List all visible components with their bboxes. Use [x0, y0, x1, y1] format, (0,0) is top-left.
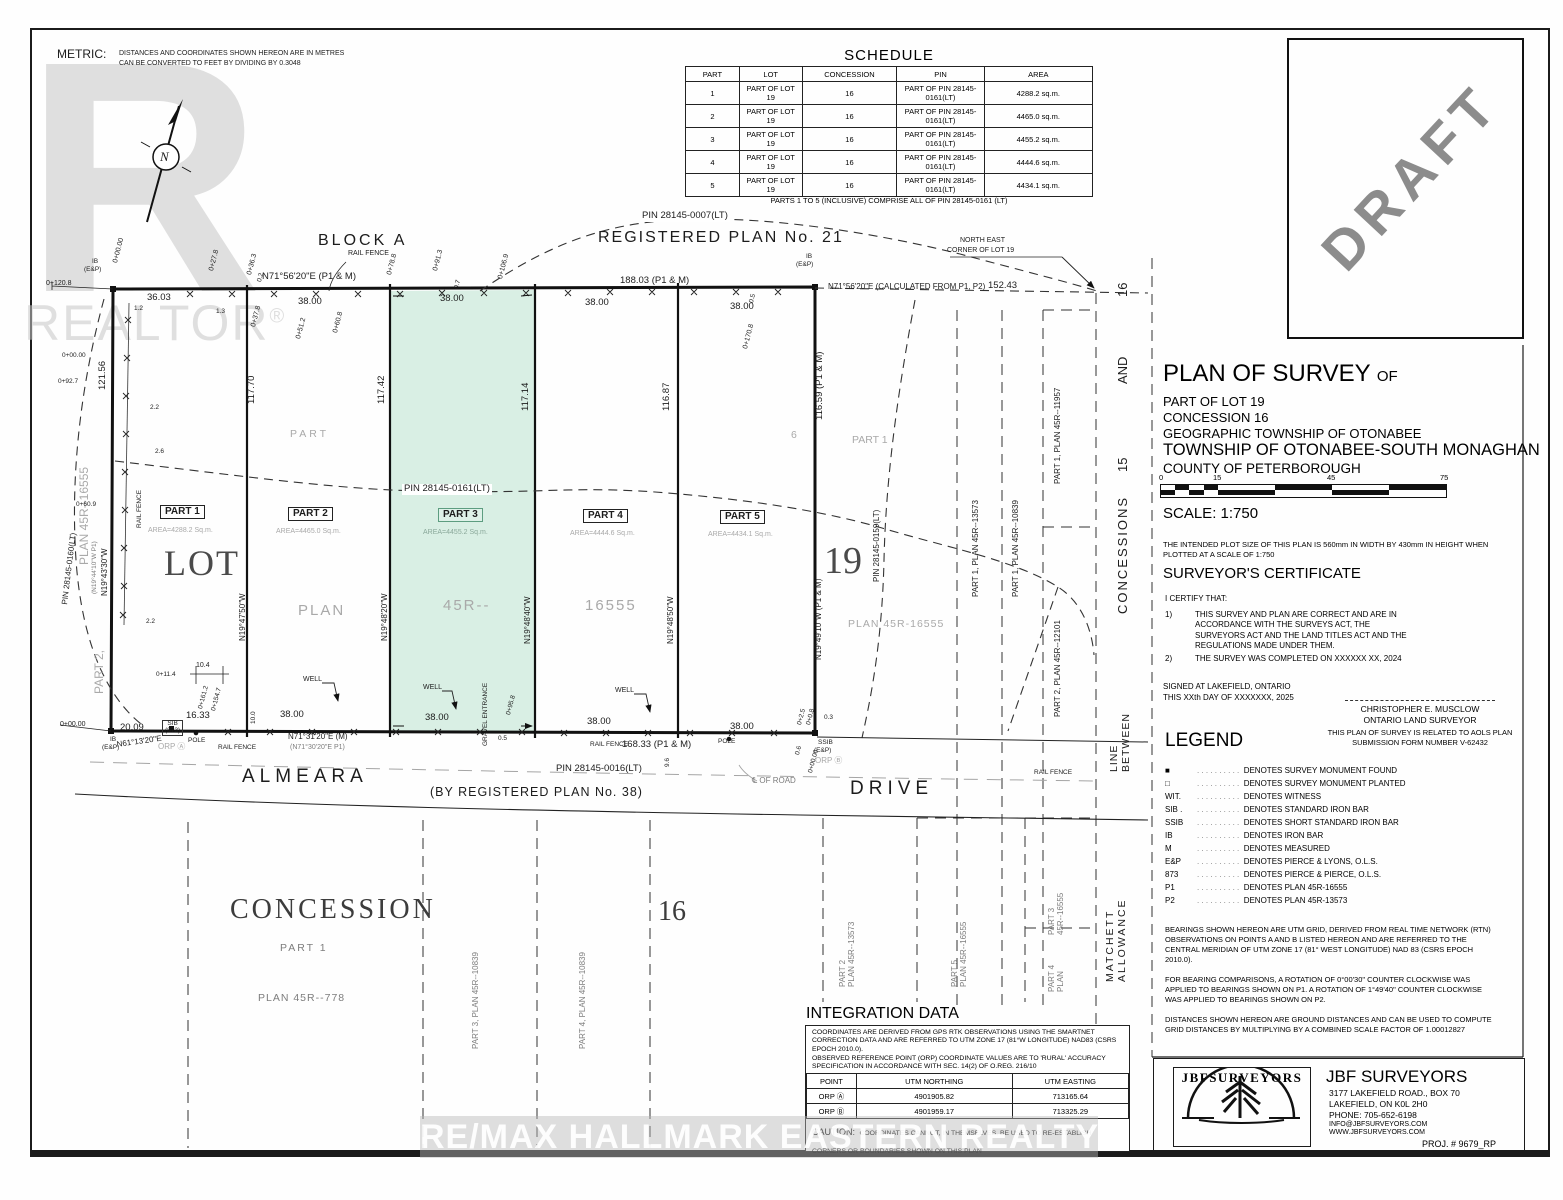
dim-117-70: 117.70	[247, 376, 258, 404]
chainage-0-00-left: 0+00.00	[62, 352, 86, 359]
part3-box: PART 3	[438, 508, 483, 522]
well3-leader	[634, 694, 650, 712]
well1-label: WELL	[303, 676, 322, 684]
dim-10-4: 10.4	[196, 662, 210, 670]
cert1-num: 1)	[1165, 610, 1172, 619]
schedule-title: SCHEDULE	[685, 47, 1093, 64]
ref-45r10839-p4: PART 4, PLAN 45R--10839	[578, 952, 587, 1049]
almeara-street-label: ALMEARA	[242, 766, 368, 788]
offset-1-3: 1.3	[216, 308, 225, 315]
dim-10-0: 10.0	[250, 711, 257, 724]
schedule-row: 1PART OF LOT 1916PART OF PIN 28145-0161(…	[686, 82, 1093, 105]
part4-box: PART 4	[583, 509, 628, 523]
cert2-num: 2)	[1165, 654, 1172, 663]
ghost-part1-right: PART 1	[852, 434, 888, 446]
dim-117-42: 117.42	[377, 376, 388, 404]
legend-row: M. . . . . . . . . . DENOTES MEASURED	[1165, 842, 1406, 855]
ref-line2: 45R--16555	[1056, 893, 1065, 935]
matchett-allowance-label: MATCHETT ALLOWANCE	[1104, 898, 1128, 982]
integration-header-row: POINT UTM NORTHING UTM EASTING	[807, 1074, 1129, 1089]
surveyors-certificate-title: SURVEYOR'S CERTIFICATE	[1163, 565, 1361, 582]
survey-plan-sheet: R REALTOR®	[0, 0, 1563, 1200]
scale-bar	[1160, 484, 1447, 498]
ref-45r10839: PART 1, PLAN 45R--10839	[1011, 500, 1020, 597]
aols-note: THIS PLAN OF SURVEY IS RELATED TO AOLS P…	[1305, 728, 1535, 748]
bearing-v1: N19°47'50"W	[238, 593, 247, 641]
sib-873-box: SIB (873)	[162, 720, 183, 736]
scale-tick-0: 0	[1159, 473, 1163, 482]
concessions-vertical-label: CONCESSIONS	[1116, 496, 1131, 614]
cert-intro: I CERTIFY THAT:	[1165, 594, 1227, 603]
metric-line1: DISTANCES AND COORDINATES SHOWN HEREON A…	[119, 50, 344, 58]
part1-below-label: PART 1	[280, 942, 328, 954]
legend-row: WIT.. . . . . . . . . . DENOTES WITNESS	[1165, 790, 1406, 803]
pin-boundary-dashed-curves	[74, 219, 1148, 738]
offset-2-2b: 2.2	[146, 618, 155, 625]
offset-0-3: 0.3	[824, 714, 833, 721]
rotation-note: FOR BEARING COMPARISONS, A ROTATION OF 0…	[1165, 975, 1500, 1005]
schedule-row: 2PART OF LOT 1916PART OF PIN 28145-0161(…	[686, 105, 1093, 128]
rail-fence-bot1: RAIL FENCE	[218, 744, 256, 751]
by-registered-plan-label: (BY REGISTERED PLAN No. 38)	[430, 785, 643, 799]
jbf-addr2: LAKEFIELD, ON K0L 2H0	[1329, 1099, 1427, 1109]
surveyor-title: ONTARIO LAND SURVEYOR	[1335, 715, 1505, 725]
registered-plan-21-label: REGISTERED PLAN No. 21	[598, 229, 844, 247]
title-line4: TOWNSHIP OF OTONABEE-SOUTH MONAGHAN	[1163, 441, 1540, 460]
jbf-phone: PHONE: 705-652-6198	[1329, 1110, 1417, 1120]
schedule-row: 4PART OF LOT 1916PART OF PIN 28145-0161(…	[686, 151, 1093, 174]
dim-38-top-p5: 38.00	[730, 302, 754, 313]
concession-15-vertical: 15	[1116, 458, 1131, 472]
scale-tick-45: 45	[1327, 473, 1335, 482]
legend-row: ■. . . . . . . . . . DENOTES SURVEY MONU…	[1165, 764, 1406, 777]
line-word: LINE	[1108, 713, 1120, 772]
bearing-v3: N19°48'40"W	[523, 596, 532, 644]
between-word: BETWEEN	[1120, 713, 1132, 772]
ref-line2: PLAN	[1056, 965, 1065, 992]
integration-title: INTEGRATION DATA	[806, 1005, 959, 1023]
ne-corner-line1: NORTH EAST	[960, 237, 1005, 245]
ib-top-right: IB	[806, 253, 812, 260]
metric-label: METRIC:	[57, 48, 106, 62]
concession-16-label: 16	[658, 896, 686, 928]
bearing-bottom-m: N71°31'20"E (M)	[288, 732, 348, 741]
dim-121-56: 121.56	[98, 361, 109, 390]
dim-36-03: 36.03	[147, 293, 171, 304]
jbf-tree-logo-icon	[1174, 1068, 1307, 1128]
dim-38-top-p3: 38.00	[440, 294, 464, 305]
jbf-project-number: PROJ. # 9679_RP	[1422, 1139, 1496, 1149]
signed-line1: SIGNED AT LAKEFIELD, ONTARIO	[1163, 682, 1291, 691]
ne-corner-line2: CORNER OF LOT 19	[947, 247, 1014, 255]
ref-line1: PART 4	[1047, 965, 1056, 992]
scale-label: SCALE: 1:750	[1163, 505, 1258, 522]
offset-1-2: 1.2	[134, 305, 143, 312]
ref-45r10839-p3: PART 3, PLAN 45R--10839	[471, 952, 480, 1049]
pin-0016-label: PIN 28145-0016(LT)	[556, 764, 642, 775]
matchett-line: MATCHETT	[1104, 898, 1116, 982]
schedule-header-row: PARTLOT CONCESSIONPIN AREA	[686, 67, 1093, 82]
dim-116-87: 116.87	[662, 383, 673, 411]
dim-188-03: 188.03 (P1 & M)	[620, 276, 689, 287]
title-of: OF	[1377, 368, 1398, 385]
ref-45r11957: PART 1, PLAN 45R--11957	[1053, 388, 1062, 484]
ref-line1: PART 5	[950, 922, 959, 987]
chainage-0-11-4: 0+11.4	[156, 671, 176, 678]
title-line3: GEOGRAPHIC TOWNSHIP OF OTONABEE	[1163, 426, 1421, 441]
legend-row: 873. . . . . . . . . . DENOTES PIERCE & …	[1165, 868, 1406, 881]
dim-20-09: 20.09	[120, 723, 144, 734]
distances-note: DISTANCES SHOWN HEREON ARE GROUND DISTAN…	[1165, 1015, 1500, 1035]
pin-0159-label: PIN 28145-0159(LT)	[872, 510, 881, 582]
rail-fence-top: RAIL FENCE	[348, 250, 389, 258]
cert1-text: THIS SURVEY AND PLAN ARE CORRECT AND ARE…	[1195, 610, 1420, 652]
schedule-row: 5PART OF LOT 1916PART OF PIN 28145-0161(…	[686, 174, 1093, 197]
legend-row: P2. . . . . . . . . . DENOTES PLAN 45R-1…	[1165, 894, 1406, 907]
area4-label: AREA=4444.6 Sq.m.	[570, 530, 635, 538]
road-north-limit-east	[817, 737, 1148, 742]
ref-45r13573: PART 1, PLAN 45R--13573	[971, 500, 980, 597]
pin-0161-label: PIN 28145-0161(LT)	[402, 484, 492, 495]
schedule-table: PARTLOT CONCESSIONPIN AREA 1PART OF LOT …	[685, 66, 1093, 197]
plot-size-note: THE INTENDED PLOT SIZE OF THIS PLAN IS 5…	[1163, 540, 1493, 560]
sib-873-label: (873)	[165, 728, 180, 735]
chainage-0-60-9: 0+60.9	[76, 501, 96, 508]
ref-45r12101: PART 2, PLAN 45R--12101	[1053, 620, 1062, 717]
dim-9-6: 9.6	[664, 758, 671, 767]
chainage-0-00-bl: 0+00.00	[60, 721, 86, 729]
draft-stamp-box: DRAFT	[1287, 38, 1524, 339]
legend-row: P1. . . . . . . . . . DENOTES PLAN 45R-1…	[1165, 881, 1406, 894]
plan-of-survey-title: PLAN OF SURVEY OF	[1163, 360, 1398, 388]
ghost-part2-left: PART 2,	[93, 650, 107, 694]
rail-fence-bot2: RAIL FENCE	[590, 741, 628, 748]
jbf-email: INFO@JBFSURVEYORS.COM	[1329, 1121, 1427, 1128]
integration-row: ORP Ⓐ4901905.82713165.64	[807, 1089, 1129, 1104]
gravel-entrance-label: GRAVEL ENTRANCE	[482, 683, 489, 746]
integration-table: POINT UTM NORTHING UTM EASTING ORP Ⓐ4901…	[806, 1073, 1129, 1119]
title-line1: PART OF LOT 19	[1163, 394, 1265, 409]
allowance-line: ALLOWANCE	[1116, 898, 1128, 982]
pole1-label: POLE	[188, 737, 205, 744]
jbf-logo-box: JBFSURVEYORS	[1173, 1067, 1311, 1147]
legend-row: E&P. . . . . . . . . . DENOTES PIERCE & …	[1165, 855, 1406, 868]
concession-16-vertical: 16	[1116, 283, 1131, 297]
ghost-plan: PLAN	[298, 602, 345, 619]
lot-big-label: LOT	[164, 543, 240, 584]
area1-label: AREA=4288.2 Sq.m.	[148, 527, 213, 535]
north-n-label: N	[160, 150, 169, 165]
ref-45r16555-p3: PART 3 45R--16555	[1047, 893, 1065, 935]
integration-para2: OBSERVED REFERENCE POINT (ORP) COORDINAT…	[812, 1055, 1122, 1072]
ref-line1: PART 2	[838, 922, 847, 987]
remax-watermark: RE/MAX HALLMARK EASTERN REALTY Brokerage	[420, 1116, 1098, 1158]
legend-row: SIB .. . . . . . . . . . DENOTES STANDAR…	[1165, 803, 1406, 816]
top-bearing: N71°56'20"E (P1 & M)	[262, 272, 356, 283]
dim-38-bot-p4: 38.00	[587, 717, 611, 728]
concession-label: CONCESSION	[230, 894, 436, 926]
ghost-plan-45r16555-left: PLAN 45R--16555	[78, 467, 92, 565]
drive-street-label: DRIVE	[850, 778, 933, 800]
lot19-big-label: 19	[824, 540, 862, 584]
dim-38-bot-p5: 38.00	[730, 722, 754, 733]
dim-116-59: 116.59 (P1 & M)	[815, 352, 826, 420]
ref-part4-plan: PART 4 PLAN	[1047, 965, 1065, 992]
left-bearing: N19°43'30"W	[100, 548, 109, 596]
ghost-plan-right: PLAN 45R-16555	[848, 618, 944, 630]
part2-box: PART 2	[288, 507, 333, 521]
schedule-footer: PARTS 1 TO 5 (INCLUSIVE) COMPRISE ALL OF…	[685, 196, 1093, 205]
integration-para1: COORDINATES ARE DERIVED FROM GPS RTK OBS…	[812, 1029, 1122, 1054]
ib-top-right-eandp: (E&P)	[796, 261, 813, 268]
pole2-label: POLE	[718, 738, 735, 745]
legend-list: ■. . . . . . . . . . DENOTES SURVEY MONU…	[1165, 764, 1406, 907]
pin-0007-label: PIN 28145-0007(LT)	[640, 211, 730, 222]
cert2-text: THE SURVEY WAS COMPLETED ON XXXXXX XX, 2…	[1195, 654, 1402, 663]
jbf-addr1: 3177 LAKEFIELD ROAD., BOX 70	[1329, 1088, 1460, 1098]
ghost-45r: 45R--	[443, 597, 491, 614]
dim-38-top-p2: 38.00	[298, 297, 322, 308]
surveyor-name: CHRISTOPHER E. MUSCLOW	[1335, 704, 1505, 714]
ib-top-left: IB	[92, 258, 98, 265]
ghost-part: PART	[290, 428, 329, 440]
plan-45r778-label: PLAN 45R--778	[258, 992, 345, 1004]
part5-box: PART 5	[720, 510, 765, 524]
dim-38-top-p4: 38.00	[585, 298, 609, 309]
well3-label: WELL	[615, 687, 634, 695]
line-between-label: LINE BETWEEN	[1108, 713, 1132, 772]
ref-line1: PART 3	[1047, 893, 1056, 935]
ref-45r16555-p5: PART 5 PLAN 45R--16555	[950, 922, 968, 987]
ref-45r13573-p2: PART 2 PLAN 45R--13573	[838, 922, 856, 987]
legend-row: IB. . . . . . . . . . DENOTES IRON BAR	[1165, 829, 1406, 842]
ib-top-left-eandp: (E&P)	[84, 266, 101, 273]
signature-line	[1345, 700, 1495, 701]
left-bearing-p1: (N19°44'10"W P1)	[91, 541, 98, 594]
title-line2: CONCESSION 16	[1163, 410, 1268, 425]
ref-line2: PLAN 45R--13573	[847, 922, 856, 987]
ref-line2: PLAN 45R--16555	[959, 922, 968, 987]
ghost-16555: 16555	[585, 597, 637, 614]
orp-b-label: ORP Ⓑ	[815, 756, 842, 765]
legend-row: SSIB. . . . . . . . . . DENOTES SHORT ST…	[1165, 816, 1406, 829]
title-main: PLAN OF SURVEY	[1163, 360, 1370, 387]
chainage-0-92-7: 0+92.7	[58, 378, 78, 385]
schedule-row: 3PART OF LOT 1916PART OF PIN 28145-0161(…	[686, 128, 1093, 151]
draft-stamp: DRAFT	[1308, 78, 1506, 283]
bearing-bottom-p1: (N71°30'20"E P1)	[290, 744, 345, 752]
calc-bearing: N71°56'20"E (CALCULATED FROM P1, P2)	[828, 282, 985, 291]
dim-168-33: 168.33 (P1 & M)	[622, 740, 691, 751]
legend-row: □. . . . . . . . . . DENOTES SURVEY MONU…	[1165, 777, 1406, 790]
bearing-v2: N19°48'20"W	[380, 593, 389, 641]
dim-38-bot-p3: 38.00	[425, 713, 449, 724]
rail-fence-east: RAIL FENCE	[1034, 769, 1072, 776]
dim-38-bot-p2: 38.00	[280, 710, 304, 721]
well1-leader	[322, 683, 338, 701]
scale-tick-75: 75	[1440, 473, 1448, 482]
centerline-of-road-label: ℄ OF ROAD	[752, 776, 796, 785]
remax-watermark-text: RE/MAX HALLMARK EASTERN REALTY Brokerage	[420, 1116, 1098, 1158]
offset-2-2a: 2.2	[150, 404, 159, 411]
offset-2-6: 2.6	[155, 448, 164, 455]
legend-title: LEGEND	[1165, 730, 1243, 752]
ssib-label: SSIB	[818, 739, 833, 746]
bearing-v4: N19°48'50"W	[666, 596, 675, 644]
jbf-surveyors-box: JBFSURVEYORS JBF SURVEYORS 3177 LAKEFIEL…	[1153, 1058, 1525, 1154]
orp-a-label: ORP Ⓐ	[158, 742, 185, 751]
rail-fence-left: RAIL FENCE	[136, 490, 143, 528]
scale-tick-15: 15	[1213, 473, 1221, 482]
bearings-note: BEARINGS SHOWN HEREON ARE UTM GRID, DERI…	[1165, 925, 1500, 966]
metric-line2: CAN BE CONVERTED TO FEET BY DIVIDING BY …	[119, 60, 301, 68]
dim-117-14: 117.14	[521, 383, 532, 411]
dim-16-33: 16.33	[186, 711, 210, 722]
signed-line2: THIS XXth DAY OF XXXXXXX, 2025	[1163, 693, 1294, 702]
left-fence-line	[124, 303, 129, 625]
area2-label: AREA=4465.0 Sq.m.	[276, 528, 341, 536]
and-vertical: AND	[1116, 357, 1131, 384]
chainage-0-120-8: 0+120.8	[46, 280, 72, 288]
jbf-web: WWW.JBFSURVEYORS.COM	[1329, 1129, 1425, 1136]
left-fence-x-marks	[120, 317, 131, 618]
block-a-label: BLOCK A	[318, 232, 407, 250]
ghost-6: 6	[791, 429, 797, 441]
part1-box: PART 1	[160, 505, 205, 519]
offset-0-5-bot: 0.5	[498, 735, 507, 742]
dim-152-43: 152.43	[988, 281, 1017, 292]
bearing-v5: N19°49'10"W (P1 & M)	[814, 579, 823, 660]
area5-label: AREA=4434.1 Sq.m.	[708, 531, 773, 539]
jbf-name: JBF SURVEYORS	[1326, 1067, 1467, 1087]
well2-label: WELL	[423, 684, 442, 692]
ne-corner-arrow	[1062, 257, 1094, 288]
area3-label: AREA=4455.2 Sq.m.	[423, 529, 488, 537]
